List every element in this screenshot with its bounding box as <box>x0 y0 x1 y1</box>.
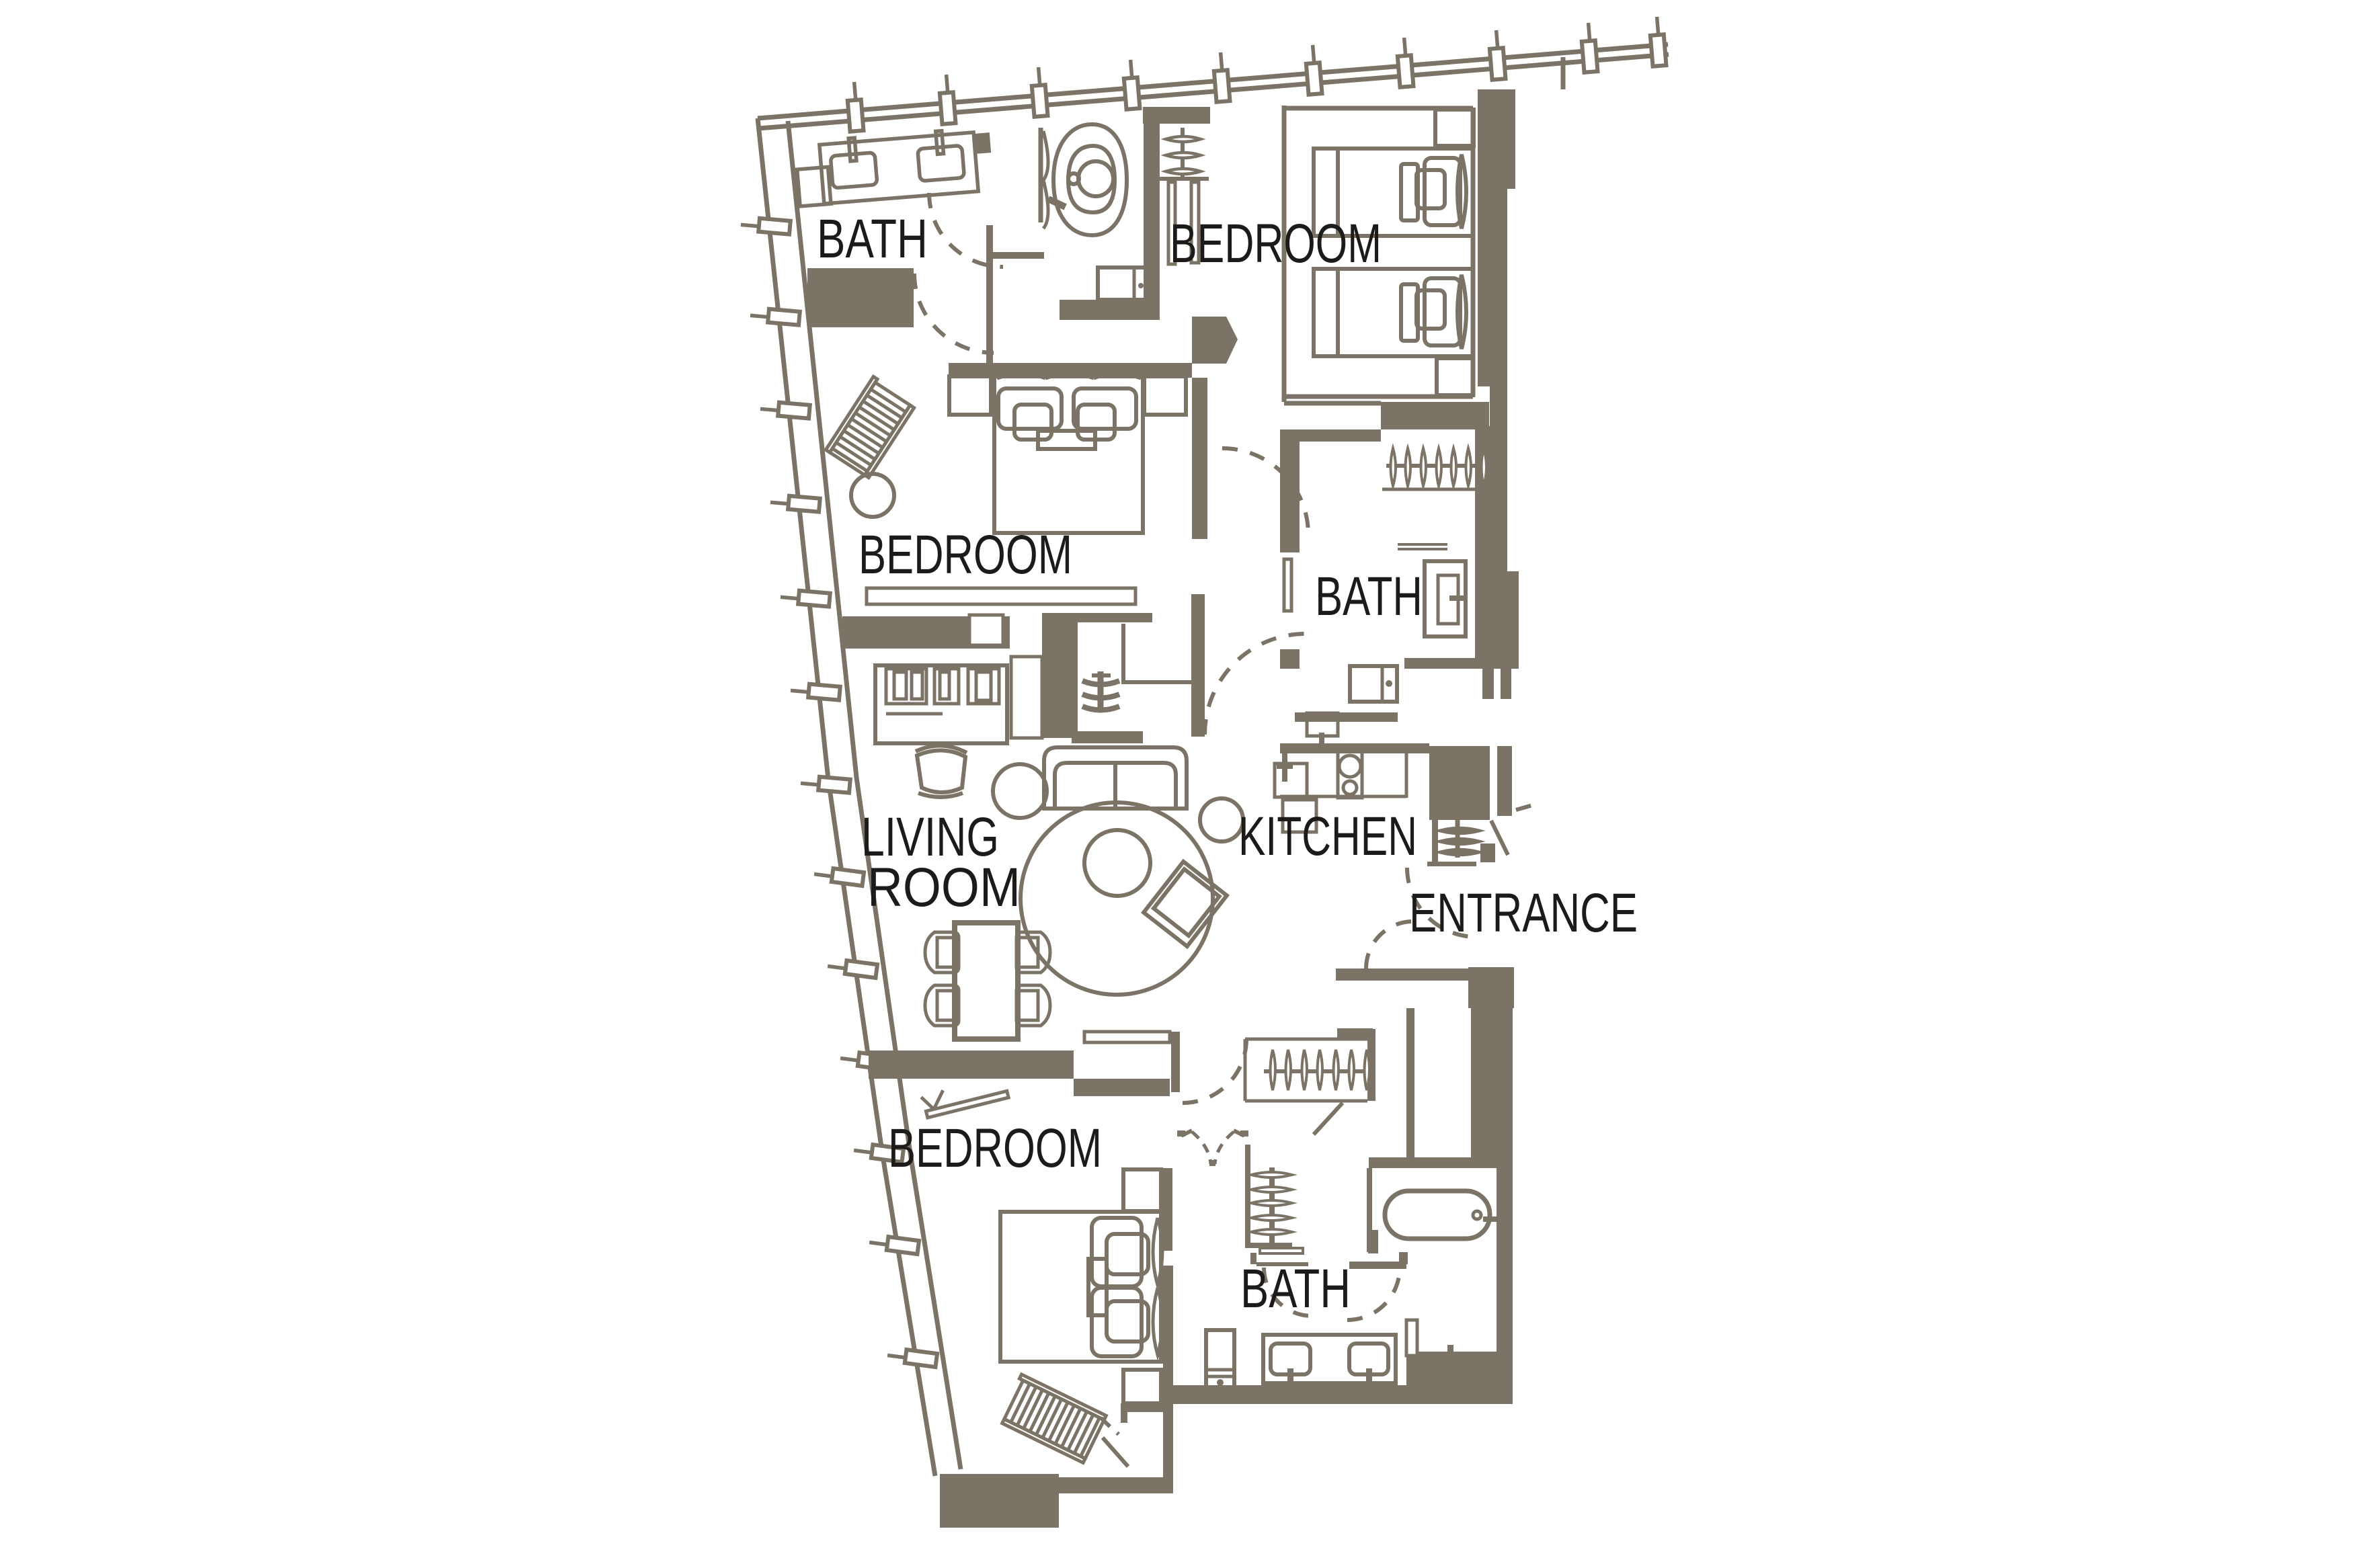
svg-text:BEDROOM: BEDROOM <box>888 1118 1102 1179</box>
svg-text:KITCHEN: KITCHEN <box>1238 806 1417 867</box>
svg-text:BEDROOM: BEDROOM <box>859 524 1072 585</box>
svg-text:BATH: BATH <box>1240 1258 1351 1319</box>
svg-text:ROOM: ROOM <box>867 857 1021 918</box>
svg-text:BEDROOM: BEDROOM <box>1170 213 1382 274</box>
svg-text:BATH: BATH <box>1315 566 1423 627</box>
svg-text:BATH: BATH <box>817 208 928 270</box>
svg-text:ENTRANCE: ENTRANCE <box>1409 882 1638 944</box>
